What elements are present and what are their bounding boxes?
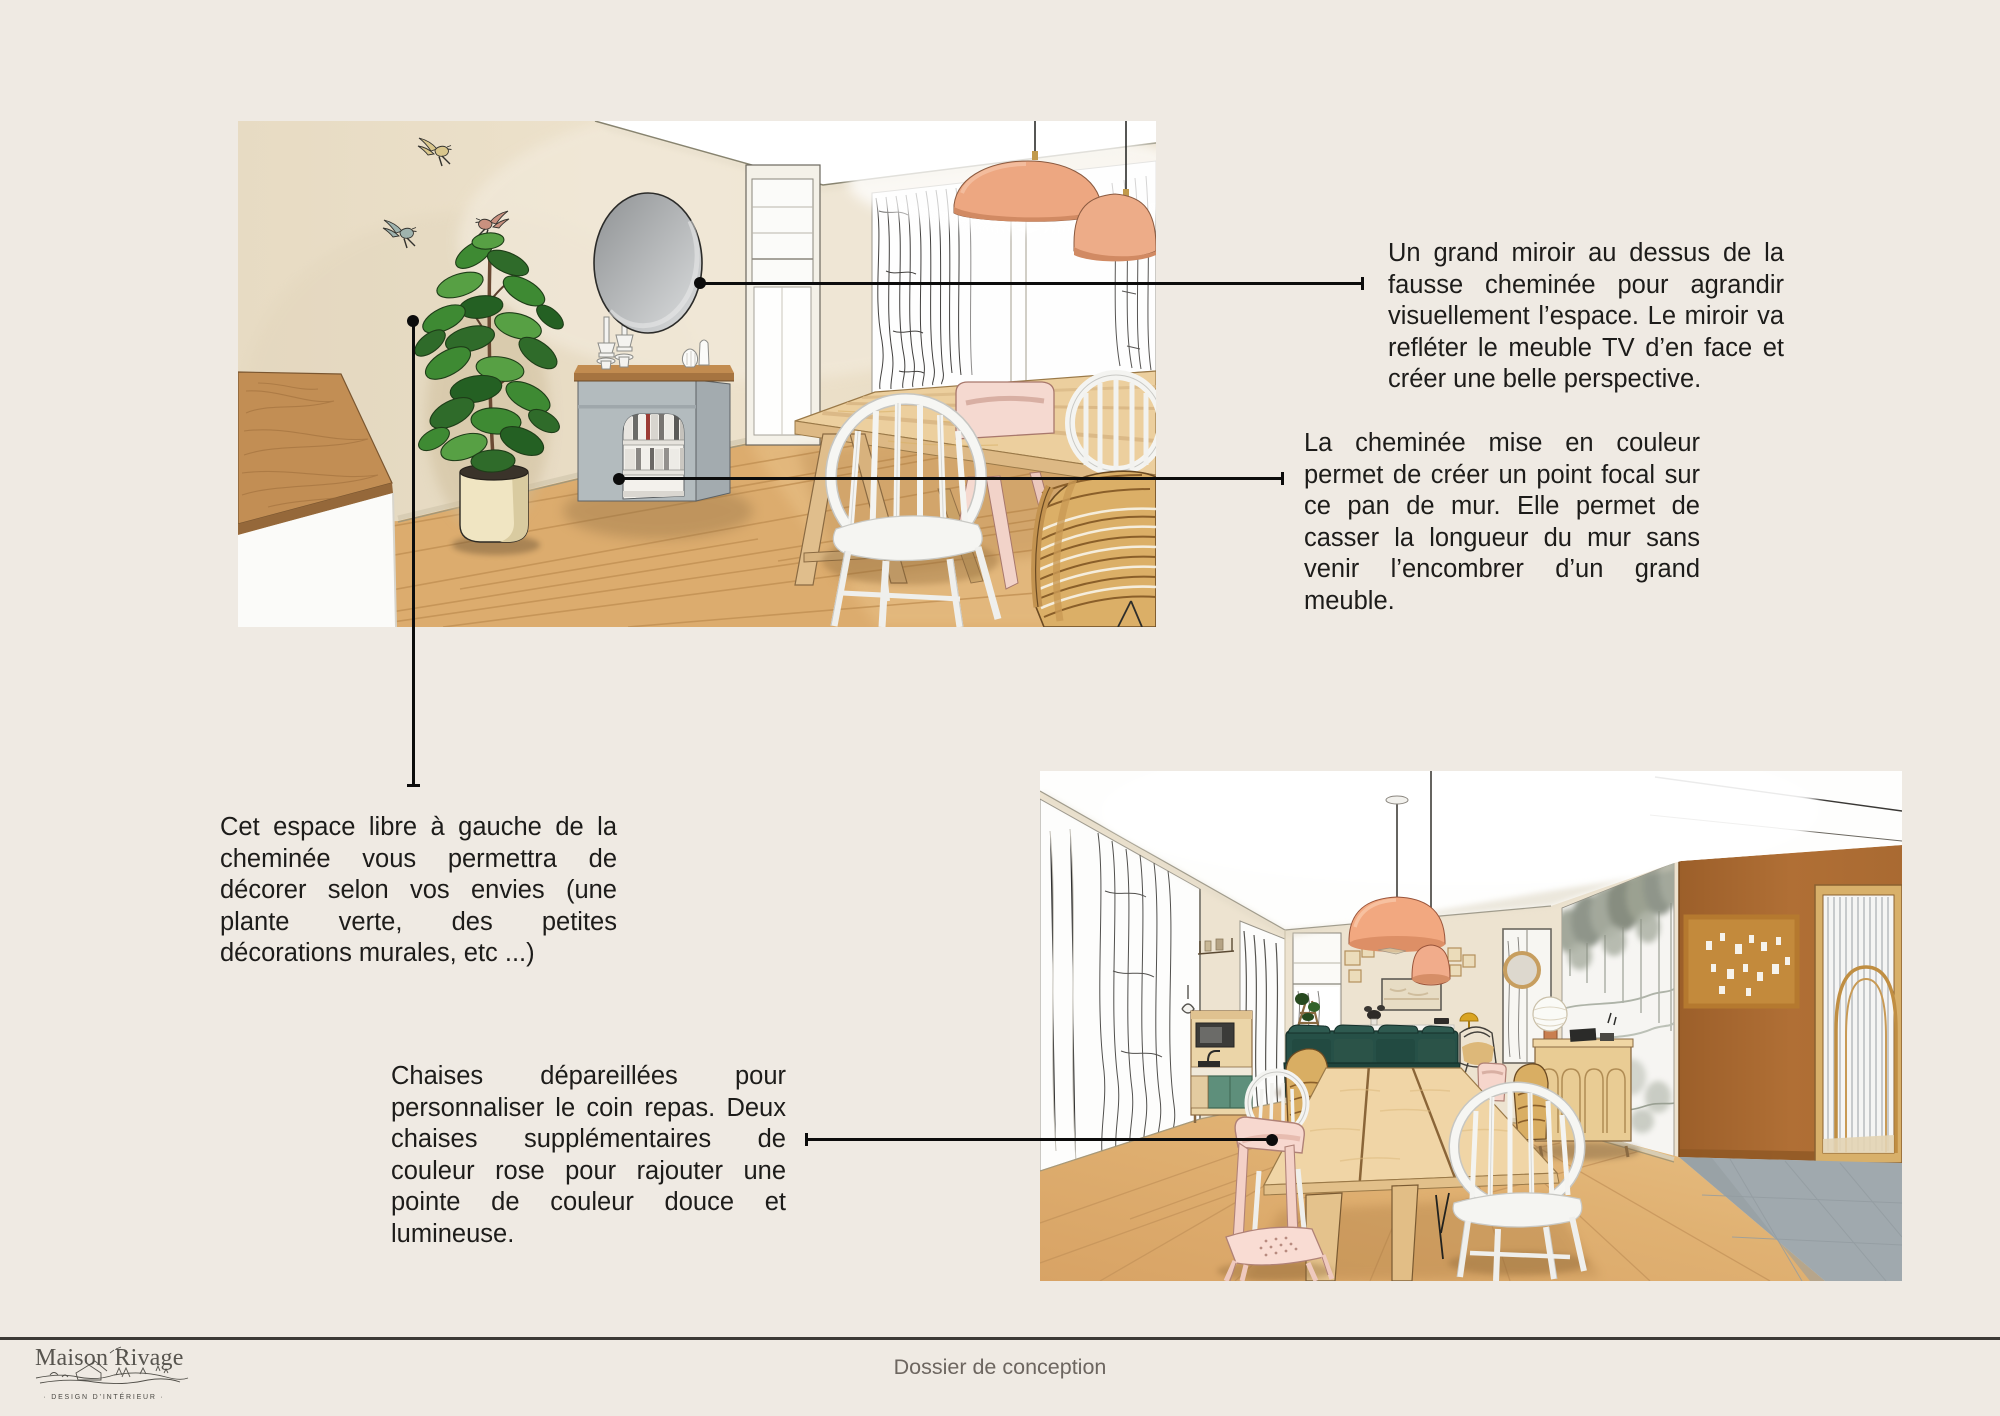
svg-text:· DESIGN D’INTÉRIEUR ·: · DESIGN D’INTÉRIEUR · bbox=[43, 1392, 164, 1401]
